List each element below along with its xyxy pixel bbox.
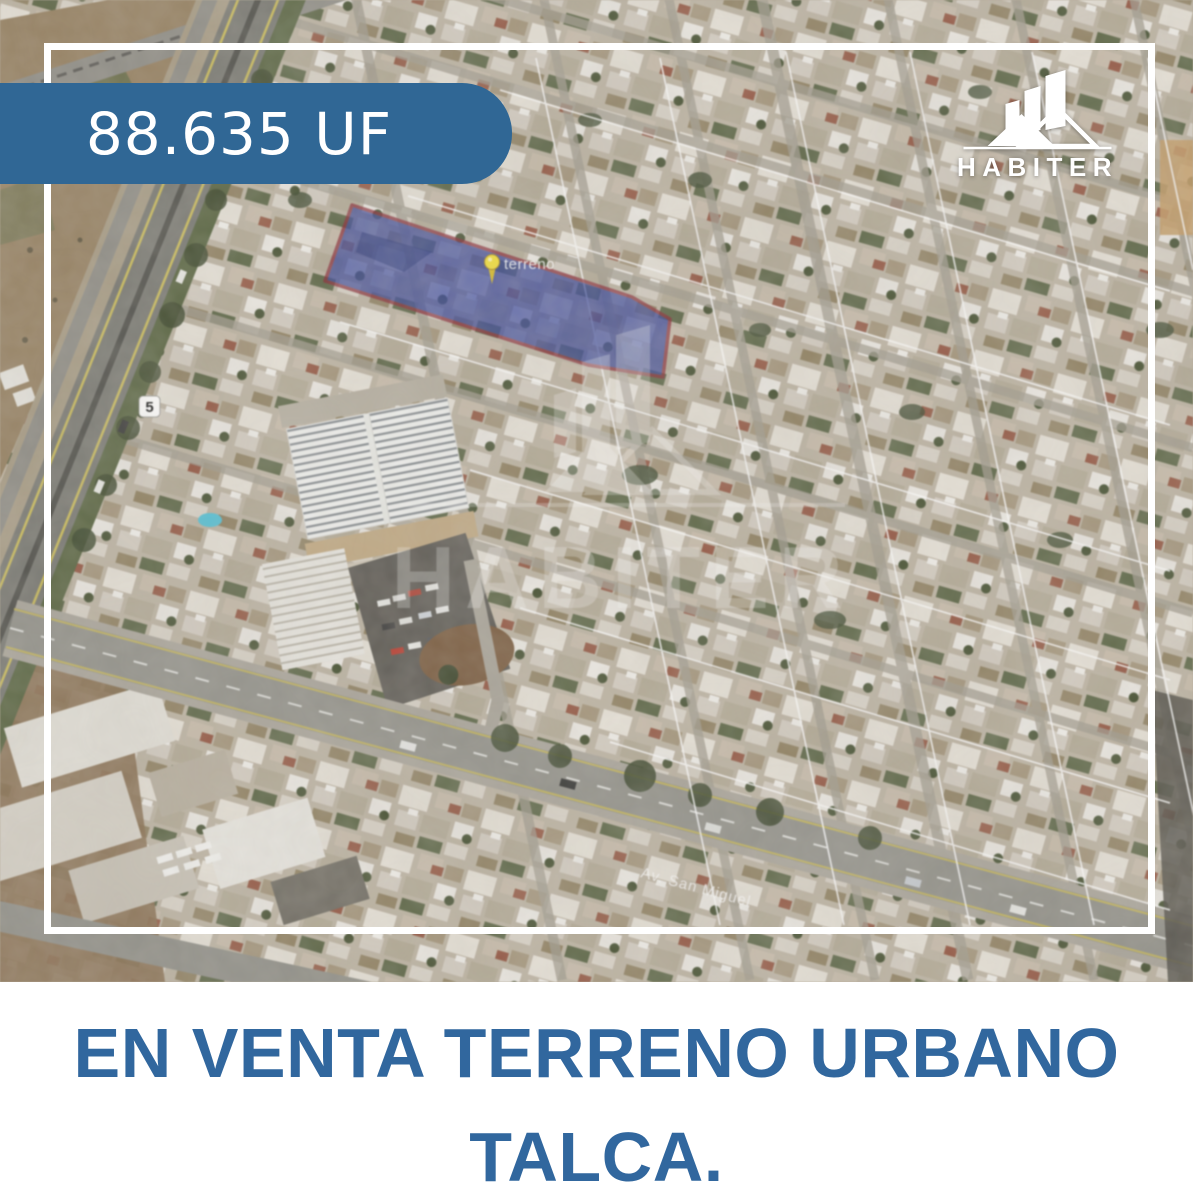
satellite-photo: 5	[0, 0, 1193, 982]
caption-line-2: TALCA.	[469, 1122, 723, 1192]
habiter-logo: HABITER	[925, 66, 1150, 186]
caption-area: EN VENTA TERRENO URBANO TALCA.	[0, 982, 1193, 1200]
real-estate-listing-poster: 5	[0, 0, 1193, 1200]
logo-wordmark: HABITER	[957, 152, 1118, 182]
price-badge: 88.635 UF	[0, 83, 512, 184]
logo-tower-tall	[1046, 70, 1066, 130]
caption-line-1: EN VENTA TERRENO URBANO	[74, 1018, 1120, 1088]
habiter-logo-icon: HABITER	[925, 66, 1150, 186]
price-text: 88.635 UF	[86, 100, 392, 168]
